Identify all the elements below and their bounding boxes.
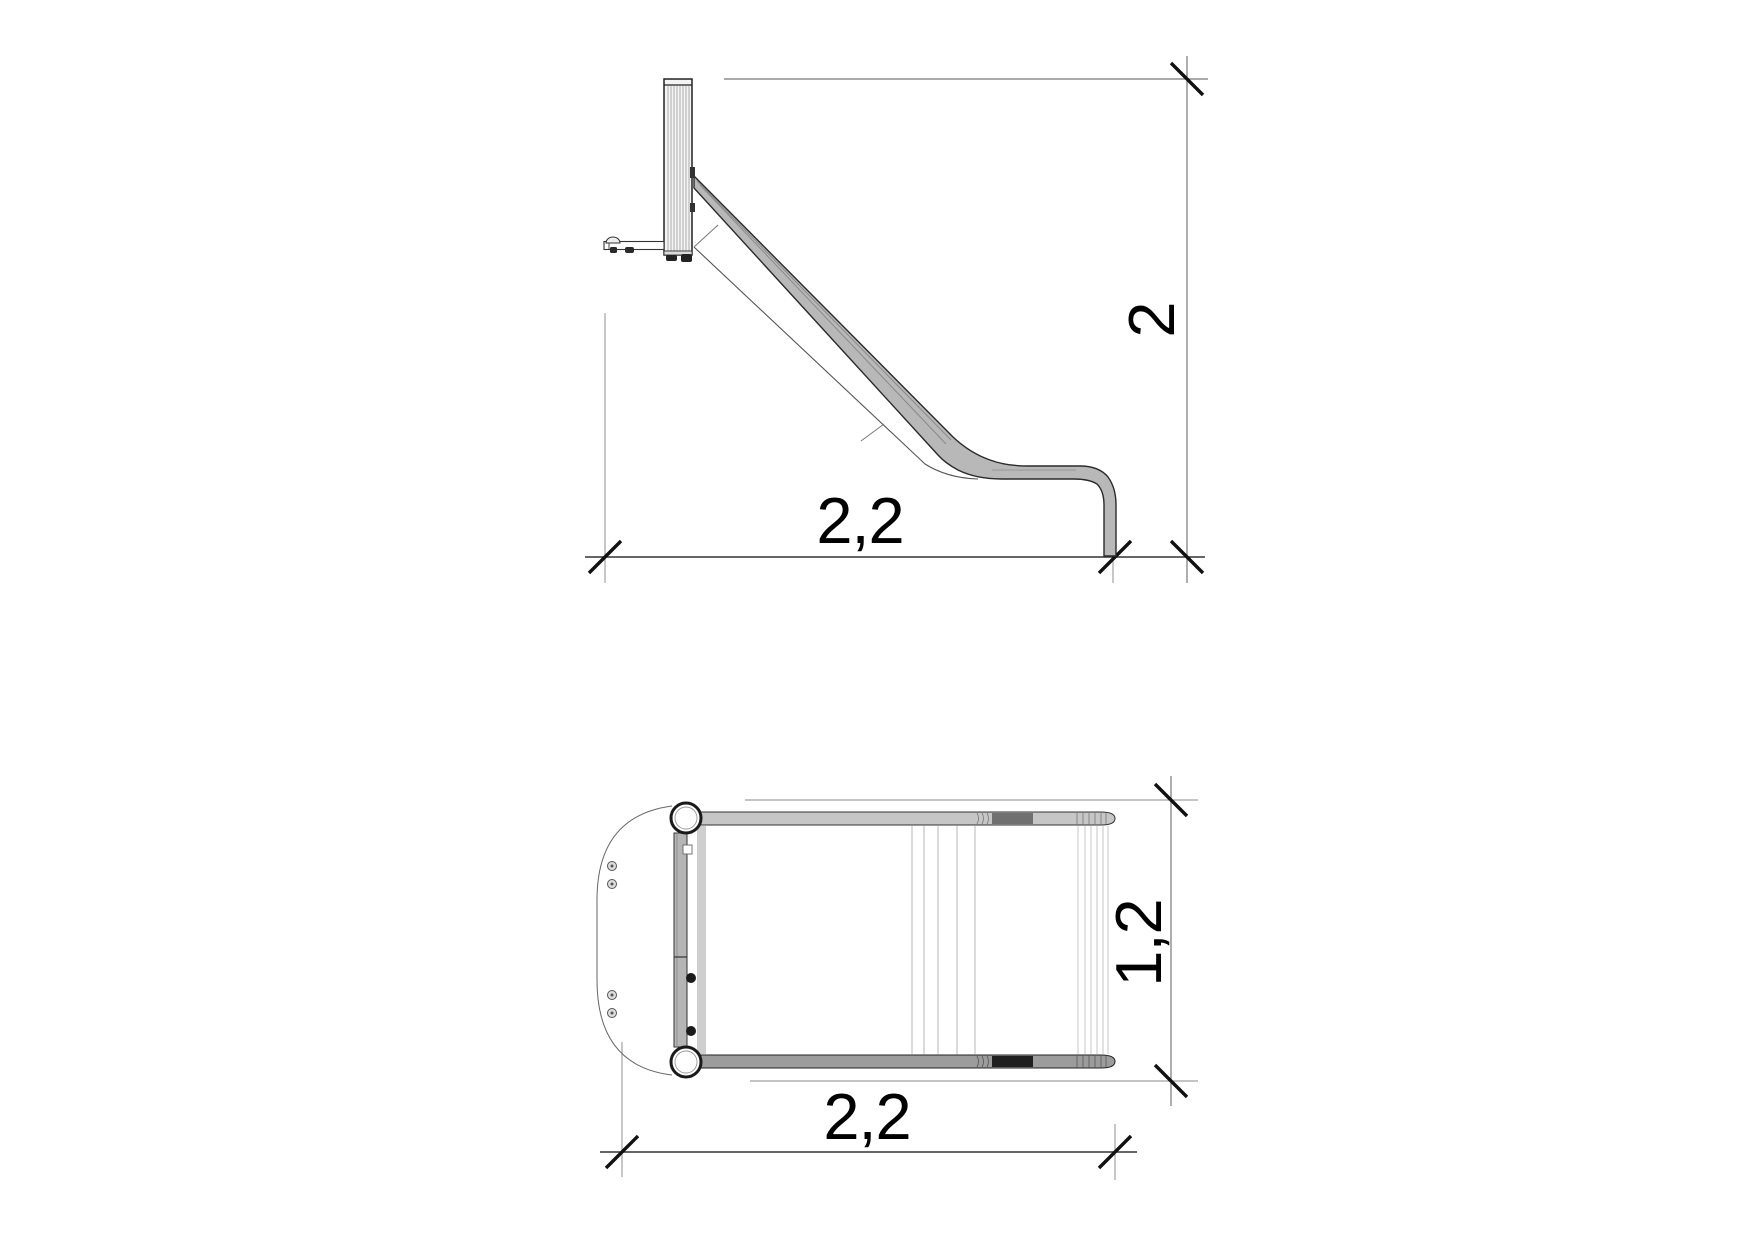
bolt-dome-head (606, 237, 620, 243)
chute-detail-line (700, 185, 946, 444)
post-foot (666, 255, 677, 261)
drawing-linework (0, 0, 1753, 1239)
side-length-dimension-label: 2,2 (760, 488, 960, 554)
chute-detail-line (697, 181, 951, 440)
bolt-nut (610, 247, 617, 253)
handrail-post-bottom (671, 1047, 701, 1077)
mounting-bracket (604, 237, 664, 253)
handrail-top (688, 812, 1115, 825)
sheet-seam (694, 225, 718, 247)
chute-curve-projection-lines (912, 826, 1108, 1054)
rail-sleeve (992, 1056, 1033, 1067)
back-panel-bar (674, 833, 687, 1047)
plan-length-dimension-label: 2,2 (767, 1084, 967, 1150)
platform-post (664, 79, 692, 262)
handrail-post-top (671, 803, 701, 833)
panel-bolt-dark (686, 1026, 696, 1036)
rail-sleeve (992, 813, 1033, 824)
chute-clamp (690, 167, 695, 178)
plan-width-dimension-label: 1,2 (1106, 883, 1172, 1003)
handrail-bottom (688, 1055, 1115, 1068)
slide-bed-edge (697, 826, 706, 1054)
bolt-nut (625, 247, 634, 253)
chute-clamp (690, 203, 695, 212)
panel-fitting (683, 845, 692, 854)
panel-bolts (608, 862, 617, 1018)
back-panel-outline (597, 806, 672, 1075)
side-height-dimension-label: 2 (1119, 270, 1185, 370)
sheet-seam (861, 424, 884, 441)
post-foot (681, 254, 692, 262)
technical-drawing-slide: 2,2 2 1,2 2,2 (0, 0, 1753, 1239)
panel-bolt-dark (686, 973, 696, 983)
